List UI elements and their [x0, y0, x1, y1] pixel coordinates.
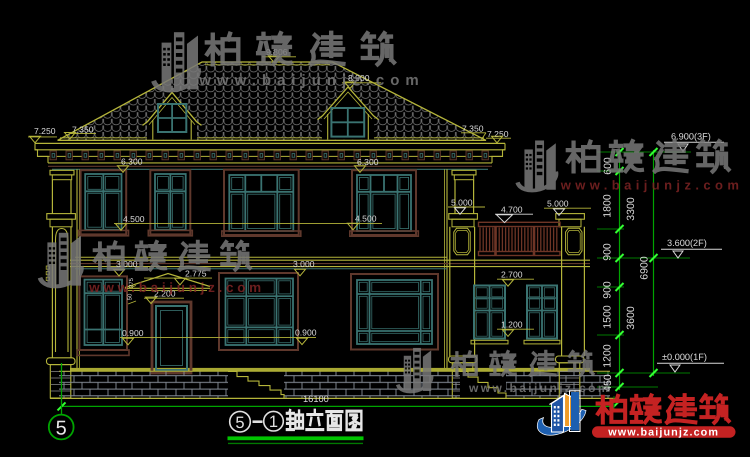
svg-text:www.baijunjz.com: www.baijunjz.com [198, 72, 424, 89]
svg-text:www.baijunjz.com: www.baijunjz.com [88, 280, 265, 295]
svg-text:900: 900 [602, 281, 614, 299]
svg-text:www.baijunjz.com: www.baijunjz.com [607, 427, 719, 439]
svg-text:7.350: 7.350 [462, 124, 484, 134]
svg-text:4.500: 4.500 [355, 214, 377, 224]
svg-text:1800: 1800 [602, 194, 614, 218]
svg-text:5.000: 5.000 [451, 197, 473, 207]
svg-text:4.500: 4.500 [123, 214, 145, 224]
svg-text:5.000: 5.000 [547, 198, 569, 208]
svg-text:900: 900 [602, 243, 614, 261]
svg-text:1200: 1200 [602, 344, 614, 368]
svg-text:5: 5 [56, 418, 67, 440]
svg-text:1: 1 [269, 413, 278, 431]
svg-text:6.300: 6.300 [121, 157, 143, 167]
svg-text:3300: 3300 [625, 197, 637, 221]
svg-text:www.baijunjz.com: www.baijunjz.com [468, 381, 611, 395]
svg-text:5: 5 [235, 414, 244, 432]
svg-text:6900: 6900 [639, 256, 651, 280]
svg-text:3.000: 3.000 [293, 259, 315, 269]
svg-text:3600: 3600 [625, 306, 637, 330]
svg-text:www.baijunjz.com: www.baijunjz.com [560, 178, 744, 193]
svg-text:7.250: 7.250 [34, 126, 56, 136]
svg-text:0.900: 0.900 [122, 328, 144, 338]
svg-text:16100: 16100 [303, 394, 329, 404]
svg-text:1.200: 1.200 [501, 320, 523, 330]
svg-text:4.700: 4.700 [501, 205, 523, 215]
svg-text:3.600(2F): 3.600(2F) [667, 238, 707, 248]
svg-text:0.900: 0.900 [295, 328, 317, 338]
svg-text:±0.000(1F): ±0.000(1F) [662, 352, 707, 362]
svg-text:2.700: 2.700 [501, 270, 523, 280]
svg-text:6.900(3F): 6.900(3F) [671, 132, 711, 142]
svg-text:7.250: 7.250 [487, 129, 509, 139]
svg-text:1500: 1500 [602, 305, 614, 329]
